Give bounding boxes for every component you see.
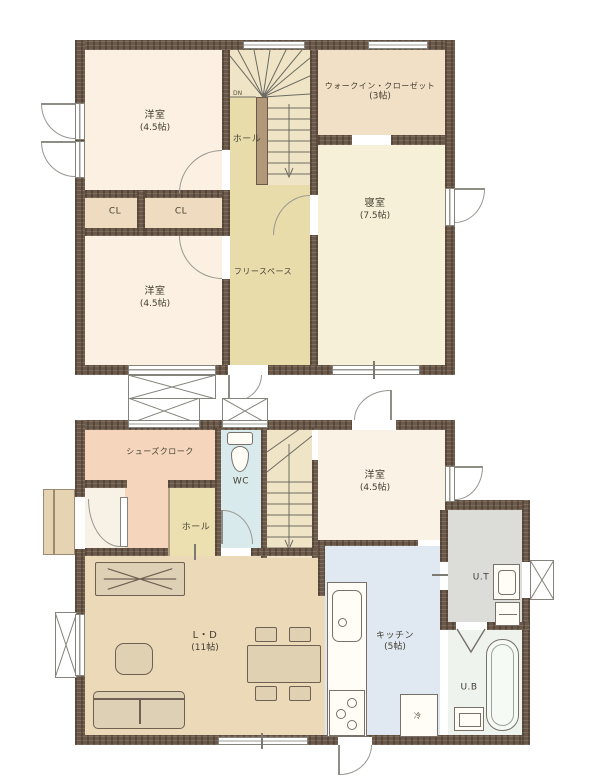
wall-yoshitsu-bottom: [318, 540, 418, 546]
sofa-seat-divider: [139, 698, 141, 724]
toilet-tank: [227, 432, 253, 445]
closet-band: [85, 198, 222, 228]
door-arc-yoshitsu-exterior: [354, 390, 390, 420]
room-label-wic: ウォークイン・クローゼット (3帖): [325, 81, 436, 102]
room-label-yoshitsu-1f: 洋室 (4.5帖): [360, 470, 390, 494]
wall-segment: [310, 235, 318, 365]
window-arc: [41, 142, 75, 177]
dining-chair: [255, 627, 277, 642]
room-size: (4.5帖): [140, 299, 170, 310]
room-name: U.T: [473, 572, 489, 583]
window-shutter-box: [128, 375, 216, 399]
entrance-porch: [43, 489, 75, 555]
wall-ut-ub-left: [440, 622, 456, 630]
sofa: [93, 691, 185, 729]
floorplan-canvas: DN: [0, 0, 600, 782]
wall-genkan-bottom: [85, 548, 168, 556]
staircase-2f: DN: [230, 50, 310, 185]
room-label-yoshitsu-b: 洋室 (4.5帖): [140, 286, 170, 310]
stair-tread-lines: [267, 428, 312, 558]
genkan-bench: [95, 562, 185, 596]
room-size: (4.5帖): [360, 483, 390, 494]
door-opening-yoshitsu-b: [222, 236, 230, 279]
room-size: (5帖): [384, 642, 406, 653]
window-casement-yoshitsu-1f: [445, 466, 455, 502]
stair-tread-lines: [230, 50, 310, 185]
door-leaf: [390, 390, 392, 420]
window-top-stairs: [243, 41, 305, 49]
stairs-down-label: DN: [233, 90, 242, 97]
room-size: (4.5帖): [140, 123, 170, 134]
burner: [347, 698, 357, 708]
door-opening-freespace: [228, 365, 268, 375]
washer-drum: [498, 570, 516, 595]
room-name: CL: [175, 206, 187, 217]
window-bottom-ld: [218, 737, 308, 745]
window-arc: [455, 467, 483, 500]
room-name: ウォークイン・クローゼット: [325, 81, 436, 91]
door-opening-shinshitsu: [310, 195, 318, 235]
entrance-opening: [75, 497, 85, 549]
room-shoes-cloak: [85, 428, 215, 488]
window-bottom-shinshitsu: [332, 365, 420, 375]
room-label-ut: U.T: [473, 572, 489, 583]
wall-segment: [222, 279, 230, 365]
burner: [347, 720, 357, 730]
room-name: CL: [109, 206, 121, 217]
window-shutter-box: [55, 612, 77, 678]
first-floor-plan: UP: [75, 420, 530, 745]
room-name: シューズクローク: [126, 447, 194, 457]
wall-segment: [85, 480, 127, 488]
wall-outer-left: [75, 40, 85, 375]
room-name: ホール: [233, 134, 262, 145]
room-label-hall-2f: ホール: [233, 134, 262, 145]
fridge-label: 冷: [414, 711, 421, 721]
door-opening-ut: [440, 562, 448, 590]
room-name: フリースペース: [234, 267, 292, 277]
room-label-cl-left: CL: [109, 206, 121, 217]
dining-chair: [255, 686, 277, 701]
wall-ut-left-upper: [440, 510, 448, 562]
bath-counter-inner: [459, 713, 481, 727]
wall-closet-divider: [137, 190, 145, 236]
door-arc-kitchen: [340, 745, 372, 775]
room-label-wc: WC: [233, 476, 249, 487]
room-name: 洋室: [365, 470, 386, 483]
door-opening-yoshitsu-a: [222, 150, 230, 190]
genkan-area: [125, 488, 168, 556]
room-name: U.B: [460, 682, 477, 693]
entrance-door-leaf: [120, 497, 128, 547]
bathtub: [486, 639, 519, 731]
wall-annex-top: [445, 500, 530, 510]
window-casement-left-1: [75, 103, 85, 140]
dining-chair: [289, 686, 311, 701]
room-shinshitsu: [318, 145, 445, 365]
wall-outer-left: [75, 420, 85, 745]
room-label-free-space: フリースペース: [234, 267, 292, 277]
bath-counter: [454, 707, 484, 731]
window-stairs: [312, 430, 318, 460]
folding-door-ub: [456, 628, 486, 654]
wall-segment: [222, 50, 230, 150]
room-name: L・D: [193, 630, 218, 643]
window-left-ld: [75, 614, 85, 676]
room-size: (11帖): [191, 643, 218, 654]
wall-wc-stairs: [261, 428, 267, 558]
room-label-kitchen: キッチン (5帖): [376, 631, 414, 654]
window-opening-ut: [522, 562, 530, 598]
window-shutter-box: [530, 560, 554, 600]
wall-ld-kitchen-stub: [318, 546, 325, 596]
window-tick: [373, 361, 375, 379]
kitchen-sink: [332, 590, 362, 642]
dining-table: [247, 645, 321, 683]
dining-chair: [289, 627, 311, 642]
room-name: WC: [233, 476, 249, 487]
door-opening-kitchen: [338, 737, 372, 745]
window-top-wic: [368, 41, 428, 49]
window-casement-left-2: [75, 141, 85, 178]
wall-wic-bottom-right: [391, 135, 445, 145]
door-opening-wc: [221, 548, 251, 556]
door-opening-yoshitsu-exterior: [352, 420, 396, 430]
coffee-table: [115, 643, 153, 675]
room-label-shoes-cloak: シューズクローク: [126, 447, 194, 457]
second-floor-plan: DN: [75, 40, 455, 375]
room-size: (3帖): [369, 91, 391, 102]
floor-edge-line: [168, 488, 170, 556]
room-name: ホール: [182, 522, 211, 533]
room-name: 洋室: [145, 110, 166, 123]
room-label-yoshitsu-a: 洋室 (4.5帖): [140, 110, 170, 134]
window-arc: [41, 104, 75, 139]
refrigerator: 冷: [400, 694, 438, 737]
room-size: (7.5帖): [360, 211, 390, 222]
bathtub-inner: [491, 644, 514, 726]
vanity: [495, 602, 520, 626]
stove: [329, 690, 365, 736]
window-arc: [455, 189, 485, 223]
porch-step-line: [53, 490, 55, 554]
room-label-ld: L・D (11帖): [191, 630, 218, 654]
window-bottom-yoshitsu-b: [128, 365, 216, 375]
room-label-shinshitsu: 寝室 (7.5帖): [360, 198, 390, 222]
vanity-handle: [499, 614, 517, 615]
sink-faucet: [338, 618, 347, 627]
bench-cross-lines: [96, 563, 184, 595]
door-tick-ut: [432, 574, 448, 576]
room-name: 洋室: [145, 286, 166, 299]
room-label-hall-1f: ホール: [182, 522, 211, 533]
window-top-wc: [222, 420, 268, 428]
room-label-ub: U.B: [460, 682, 477, 693]
burner: [336, 709, 346, 719]
wall-segment: [310, 50, 318, 195]
window-casement-right: [445, 188, 455, 226]
window-top-shoes-cloak: [128, 420, 200, 428]
washing-machine: [493, 564, 520, 600]
wall-wic-bottom-left: [318, 135, 352, 145]
wall-closet-bottom: [85, 228, 222, 236]
window-tick: [261, 733, 263, 749]
wall-segment: [168, 480, 221, 488]
wall-segment: [222, 190, 230, 236]
opening-tick-hall-ld: [194, 544, 196, 560]
room-name: キッチン: [376, 631, 414, 642]
staircase-1f: UP: [267, 428, 312, 558]
room-name: 寝室: [365, 198, 386, 211]
room-label-cl-right: CL: [175, 206, 187, 217]
